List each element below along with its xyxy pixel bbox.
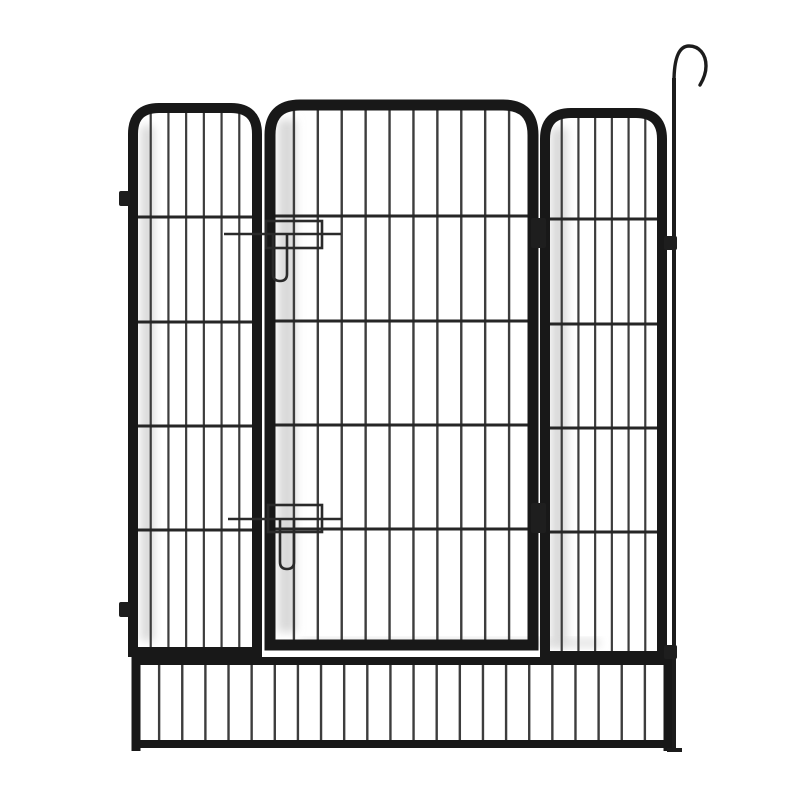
playpen-illustration — [0, 0, 800, 800]
product-photo-pet-playpen — [0, 0, 800, 800]
frame-connector-tab — [119, 191, 130, 206]
shadow-band — [551, 128, 567, 646]
gate-hinge-lower — [531, 503, 546, 533]
stake-bracket — [664, 236, 677, 250]
background — [0, 0, 800, 800]
frame-connector-tab — [119, 602, 130, 617]
shadow-band — [141, 126, 154, 641]
gate-hinge-upper — [531, 218, 546, 248]
stake-bracket — [664, 645, 677, 659]
